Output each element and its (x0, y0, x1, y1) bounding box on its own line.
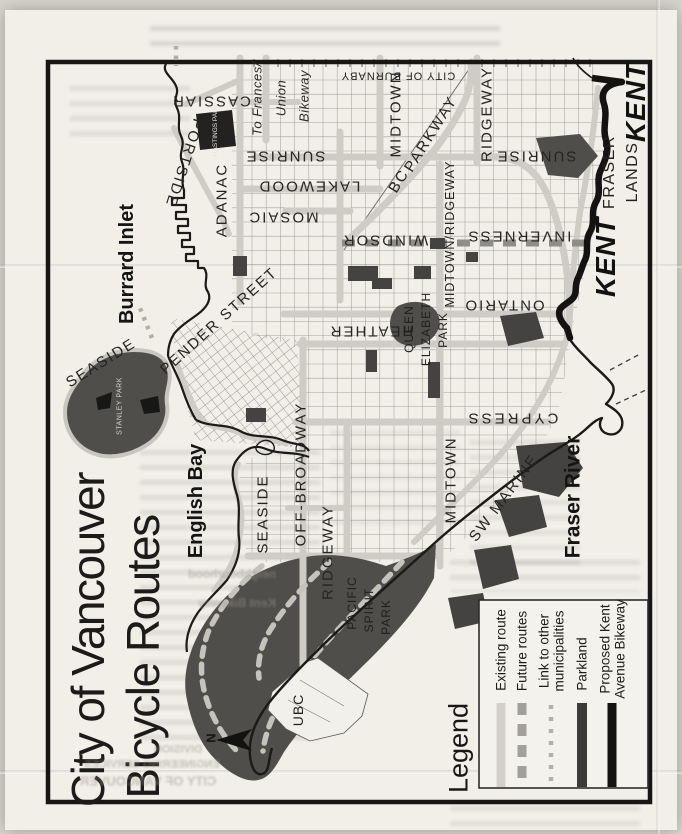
midtown-ridgeway-route-label: MIDTOWN/RIDGEWAY (444, 160, 457, 307)
ridgeway-route-label: RIDGEWAY (480, 66, 495, 162)
bleedthrough-text: ENGINEERING SERVICES (84, 760, 220, 771)
map-title-line2: Bicycle Routes (120, 515, 166, 798)
heather-route-label: HEATHER (329, 324, 414, 339)
kent-label: KENT (622, 62, 650, 142)
english-bay-label: English Bay (186, 444, 206, 558)
bleedthrough-text: CITY OF VANCOUVER (80, 775, 217, 788)
bleedthrough-text: DIVISION (154, 745, 202, 756)
mosaic-route-label: MOSAIC (247, 210, 318, 225)
hastings-park-label: HASTINGS PARK (213, 104, 220, 156)
queen-elizabeth-park-label: QUEEN (403, 305, 415, 353)
sunrise-route-label: SUNRISE (496, 149, 577, 164)
ubc-label: UBC (291, 694, 305, 727)
fraser-river-label: Fraser River (563, 436, 584, 559)
midtown-route-label: MIDTOWN (389, 70, 404, 157)
cypress-route-label: CYPRESS (466, 411, 559, 426)
off-broadway-route-label: OFF-BROADWAY (294, 402, 309, 547)
scanned-map-page: City of Vancouver Bicycle Routes Burrard… (0, 0, 682, 834)
fraser-lands-label: FRASER (602, 135, 618, 209)
legend-title: Legend (446, 703, 473, 793)
burrard-inlet-label: Burrard Inlet (117, 204, 137, 324)
stanley-park-label: STANLEY PARK (117, 377, 124, 435)
legend-item-parkland: Parkland (575, 637, 589, 690)
map-labels: City of Vancouver Bicycle Routes Burrard… (0, 0, 682, 834)
legend-item-future: Future routes (515, 611, 529, 691)
pender-street-label: PENDER STREET (158, 265, 281, 378)
to-frances-union-label: Bikeway (298, 70, 311, 122)
sunrise-route-label: SUNRISE (245, 149, 326, 164)
pacific-spirit-park-label: PACIFIC (346, 576, 358, 629)
queen-elizabeth-park-label: ELIZABETH (420, 292, 432, 366)
adanac-route-label: ADANAC (215, 163, 230, 238)
to-frances-union-label: To Frances/ (251, 62, 264, 136)
ridgeway-route-label: RIDGEWAY (321, 504, 336, 600)
bleedthrough-text: Kent Bikeway (198, 597, 276, 609)
inverness-route-label: INVERNESS (467, 229, 572, 244)
legend-item-kent: Avenue Bikeway (613, 599, 627, 699)
windsor-route-label: WINDSOR (342, 233, 429, 248)
queen-elizabeth-park-label: PARK (437, 312, 449, 348)
pacific-spirit-park-label: PARK (380, 599, 392, 635)
pacific-spirit-park-label: SPIRIT (363, 588, 375, 633)
map-title-line1: City of Vancouver (65, 473, 111, 807)
legend-item-link: Link to other (537, 614, 551, 688)
sw-marine-route-label: SW MARINE (467, 452, 542, 545)
legend-item-existing: Existing route (494, 609, 508, 691)
portside-route-label: PORTSIDE (163, 117, 206, 210)
seaside-route-label: SEASIDE (256, 474, 271, 553)
bleedthrough-text: neighbourhood (188, 568, 276, 580)
legend-item-kent: Proposed Kent (598, 604, 612, 693)
legend-item-link: municipalities (552, 610, 566, 691)
north-label: N (205, 733, 218, 742)
fraser-lands-label: LANDS (625, 142, 641, 203)
midtown-route-label: MIDTOWN (444, 436, 459, 523)
ontario-route-label: ONTARIO (463, 298, 544, 313)
kent-label: KENT (592, 217, 620, 297)
seaside-route-label: SEASIDE (64, 336, 139, 391)
to-frances-union-label: Union (275, 80, 288, 116)
lakewood-route-label: LAKEWOOD (258, 179, 361, 194)
